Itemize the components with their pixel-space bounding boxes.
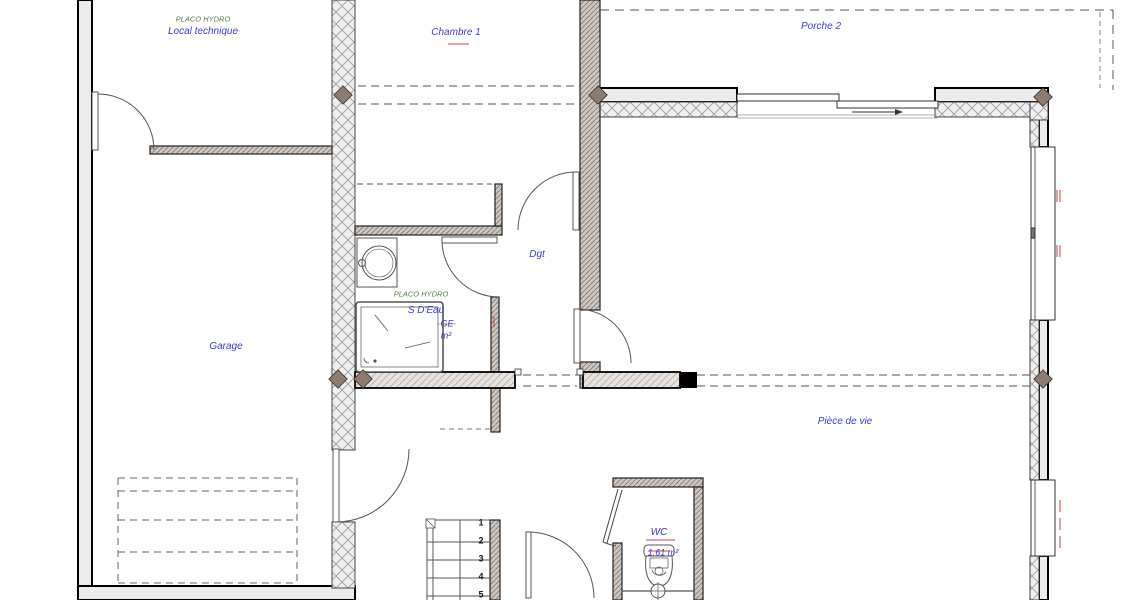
door-sdeau	[442, 237, 499, 297]
wall-placard-stub	[495, 184, 502, 226]
room-label-dgt: Dgt	[529, 250, 545, 260]
wc-hand-basin	[622, 582, 694, 600]
insulation-right-upper	[1030, 120, 1039, 147]
insulation-right-mid	[1030, 320, 1039, 480]
window-bay-right-upper	[1031, 147, 1055, 320]
room-label-piece-de-vie: Pièce de vie	[818, 417, 872, 427]
windows	[737, 94, 1055, 556]
room-label-sdeau-line2: GE	[440, 320, 453, 329]
washbasin	[357, 238, 397, 287]
wall-right-mid	[1039, 320, 1048, 480]
stair-number-5: 5	[478, 591, 483, 600]
room-label-chambre1: Chambre 1	[431, 28, 480, 38]
door-jamb-left	[515, 369, 521, 375]
material-annotation-top: PLACO HYDRO	[176, 15, 231, 23]
wall-wc-left	[613, 543, 622, 600]
material-annotation-sdeau: PLACO HYDRO	[394, 290, 449, 298]
slide-arrow-icon	[895, 109, 903, 115]
room-area-wc: 1.61 m²	[648, 549, 679, 558]
room-label-porche2: Porche 2	[801, 22, 841, 32]
room-label-sdeau-line3: m²	[441, 332, 452, 341]
wall-chambre-bottom	[355, 226, 502, 235]
wall-left	[78, 0, 92, 588]
wall-wc-top	[613, 478, 703, 487]
window-right-lower	[1031, 480, 1055, 556]
wall-stairs-right	[490, 520, 500, 600]
door-garage	[333, 449, 409, 522]
door-jamb-right	[577, 369, 583, 375]
floorplan-drawing	[0, 0, 1140, 600]
stair-number-1: 1	[478, 519, 483, 528]
stair-number-4: 4	[478, 573, 483, 582]
wall-chambre-right	[580, 0, 600, 310]
room-label-local-technique: Local technique	[168, 27, 238, 37]
porch-dashed-outline	[600, 10, 1113, 90]
wall-porch-top-right	[935, 88, 1048, 102]
room-label-sdeau: S D'Eau	[408, 306, 444, 316]
middle-wall-left-seg	[355, 372, 515, 388]
door-piece-de-vie	[574, 309, 631, 363]
door-local-technique	[92, 92, 154, 150]
wall-garage-bottom	[78, 586, 355, 600]
wall-sdeau-right	[491, 297, 499, 373]
insulation-porch-left	[598, 102, 737, 117]
middle-wall-right-seg	[583, 372, 680, 388]
insulation-corner	[1030, 102, 1048, 120]
stair-number-3: 3	[478, 555, 483, 564]
wall-localtech-divider	[150, 146, 332, 154]
wall-mid-vertical-lower	[332, 522, 355, 588]
revision-marks	[437, 44, 1060, 551]
wall-wc-right	[694, 487, 703, 600]
floorplan-canvas: PLACO HYDRO Local technique Chambre 1 Po…	[0, 0, 1140, 600]
stair-number-2: 2	[478, 537, 483, 546]
door-wc	[603, 489, 622, 546]
wall-stub-below-mid	[491, 388, 500, 432]
column-post	[680, 372, 697, 388]
garage-parking-dashed	[118, 478, 297, 600]
wall-porch-top-left	[598, 88, 737, 102]
room-label-wc: WC	[651, 528, 668, 538]
insulation-right-lower	[1030, 556, 1039, 600]
wall-right-lower	[1039, 556, 1048, 600]
door-hallway	[526, 532, 594, 598]
room-label-garage: Garage	[209, 342, 242, 352]
door-chambre1	[518, 172, 579, 230]
sliding-bay-door-top	[737, 94, 938, 118]
insulation-porch-right	[935, 102, 1030, 117]
exterior-walls	[78, 0, 1048, 600]
